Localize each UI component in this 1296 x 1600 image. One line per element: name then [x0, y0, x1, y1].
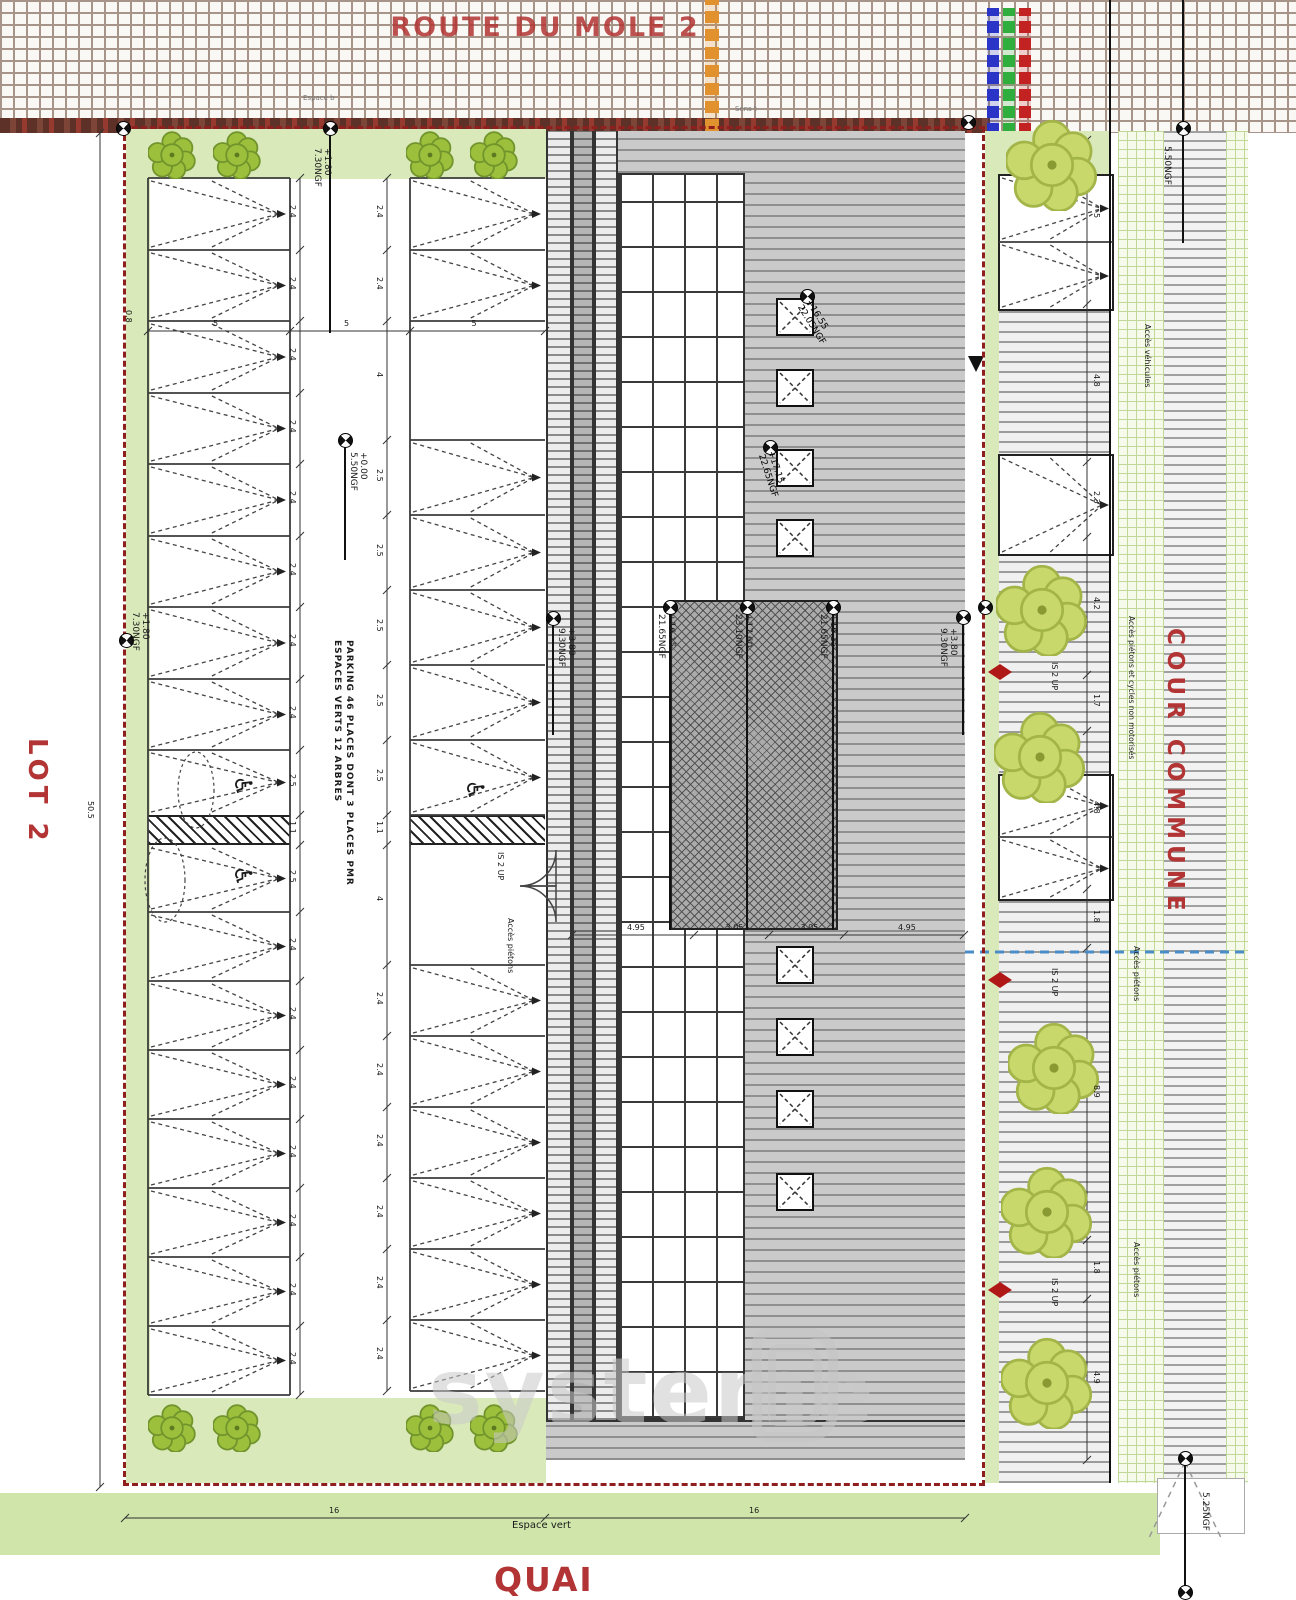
- wheelchair-icon: ♿: [461, 779, 489, 801]
- dim-label: 3.05: [801, 923, 819, 932]
- dim-label: 2.5: [375, 619, 384, 632]
- dim-label: 2.4: [375, 1063, 384, 1076]
- wheelchair-icon: ♿: [229, 865, 257, 887]
- wheelchair-icon: ♿: [229, 775, 257, 797]
- dim-label: 2.4: [288, 563, 297, 576]
- tram-lane-marker: [705, 0, 719, 131]
- street-note-right: Sens t: [735, 105, 757, 113]
- acces-pietons-lot: Accès piétons: [506, 918, 515, 973]
- dim-label: 4.8: [1092, 374, 1101, 387]
- elev-building-right: +3.809.30NGF: [938, 628, 958, 667]
- dim-label: 2.5: [375, 469, 384, 482]
- dim-label: 2.4: [288, 1076, 297, 1089]
- acces-pietons-court-2: Accès piétons: [1132, 1242, 1141, 1297]
- level-marker-icon: [546, 611, 561, 626]
- dim-label: 2.4: [375, 205, 384, 218]
- level-marker-icon: [116, 121, 131, 136]
- dim-label: 1.1: [288, 821, 297, 834]
- is2up-lot: IS 2 UP: [496, 852, 505, 880]
- dim-label: 2.4: [288, 1007, 297, 1020]
- dim-label: 2.4: [288, 1283, 297, 1296]
- dim-label: 50.5: [86, 801, 95, 819]
- espace-vert-label: Espace vert: [512, 1520, 571, 1531]
- ped-path-west: [1118, 131, 1164, 1483]
- dim-label: 2.5: [375, 694, 384, 707]
- dim-label: 2.4: [288, 706, 297, 719]
- elev-quai-corner: 5.25NGF: [1200, 1492, 1210, 1531]
- espace-vert-band: [0, 1493, 1160, 1555]
- legend-bar-green: [1003, 8, 1015, 135]
- elev-lot-center: +0.005.50NGF: [348, 452, 368, 491]
- elev-lot-left: +1.807.30NGF: [130, 612, 150, 651]
- dim-label: 5: [344, 319, 349, 328]
- dim-label: 2.5: [288, 774, 297, 787]
- level-marker-icon: [338, 433, 353, 448]
- dim-label: 2.4: [288, 491, 297, 504]
- dim-label: 1.7: [1092, 694, 1101, 707]
- dim-label: 4.95: [898, 923, 916, 932]
- level-marker-icon: [1178, 1451, 1193, 1466]
- dim-label: 2.5: [288, 870, 297, 883]
- elev-court-top: 5.50NGF: [1162, 146, 1172, 185]
- dim-label: 4.8: [1092, 801, 1101, 814]
- dim-label: 2.3: [1092, 491, 1101, 504]
- level-marker-icon: [1176, 121, 1191, 136]
- level-marker-icon: [1178, 1585, 1193, 1600]
- dim-label: 16: [749, 1506, 759, 1515]
- street-note-left: Espace b: [303, 94, 335, 102]
- dim-label: 5: [213, 319, 218, 328]
- dim-label: 2.4: [288, 420, 297, 433]
- dim-label: 5: [1092, 213, 1101, 218]
- level-marker-icon: [663, 600, 678, 615]
- dim-label: 5: [472, 319, 477, 328]
- dim-label: 4.9: [1092, 1371, 1101, 1384]
- site-plan: 2.42.42.42.42.42.42.42.42.51.12.52.42.42…: [0, 0, 1296, 1600]
- lot-title: LOT 2: [22, 738, 52, 846]
- watermark-logo: [752, 1328, 838, 1442]
- court-green-strip: [985, 131, 999, 1483]
- dim-label: 1.8: [1092, 910, 1101, 923]
- level-marker-icon: [323, 121, 338, 136]
- dim-label: 2.4: [288, 634, 297, 647]
- legend-bar-red: [1019, 8, 1031, 135]
- dim-label: 4: [375, 372, 384, 377]
- legend-bar-blue: [987, 8, 999, 135]
- elev-tower-right: +16.1521.65NGF: [818, 614, 838, 659]
- is2up-court-1: IS 2 UP: [1050, 662, 1059, 690]
- elev-tower-left: +16.1521.65NGF: [656, 614, 676, 659]
- elev-lot-top: +1.807.30NGF: [312, 148, 332, 187]
- dim-label: 2.4: [288, 1214, 297, 1227]
- lot-boundary: [123, 126, 985, 1486]
- acces-vehicules: Accès véhicules: [1143, 324, 1152, 388]
- dim-label: 8.9: [1092, 1085, 1101, 1098]
- dim-label: 1.1: [375, 821, 384, 834]
- dim-label: 3.05: [726, 923, 744, 932]
- dim-label: 2.5: [375, 544, 384, 557]
- street-name: ROUTE DU MOLE 2: [385, 12, 705, 43]
- level-marker-icon: [961, 115, 976, 130]
- ped-path-east: [1226, 131, 1248, 1483]
- elev-tower-mid: +17.6023.10NGF: [733, 614, 753, 659]
- level-marker-icon: [956, 610, 971, 625]
- dim-label: 2.4: [288, 205, 297, 218]
- dim-label: 4.2: [1092, 597, 1101, 610]
- dim-label: 16: [329, 1506, 339, 1515]
- dim-label: 1.8: [1092, 1261, 1101, 1274]
- is2up-court-3: IS 2 UP: [1050, 1278, 1059, 1306]
- dim-label: 2.4: [375, 1276, 384, 1289]
- dim-label: 2.4: [375, 277, 384, 290]
- is2up-court-2: IS 2 UP: [1050, 968, 1059, 996]
- level-marker-icon: [826, 600, 841, 615]
- dim-label: 2.4: [288, 277, 297, 290]
- dim-label: 2.4: [288, 1145, 297, 1158]
- dim-label: 2.5: [375, 769, 384, 782]
- dim-label: 2.4: [375, 1134, 384, 1147]
- dim-label: 2.4: [375, 992, 384, 1005]
- court-green-top: [999, 131, 1111, 201]
- level-marker-icon: [740, 600, 755, 615]
- dim-label: 0.8: [124, 310, 133, 323]
- acces-pietons-cycles: Accès piétons et cycles non motorisés: [1126, 616, 1137, 786]
- dim-label: 2.4: [375, 1347, 384, 1360]
- dim-label: 4.95: [627, 923, 645, 932]
- elev-building-left: +3.809.30NGF: [556, 628, 576, 667]
- parking-note-line2: ESPACES VERTS 12 ARBRES: [331, 640, 343, 886]
- dim-label: 2.4: [375, 1205, 384, 1218]
- acces-pietons-court-1: Accès piétons: [1132, 946, 1141, 1001]
- level-marker-icon: [978, 600, 993, 615]
- court-title: COUR COMMUNE: [1162, 628, 1188, 917]
- parking-note-line1: PARKING 46 PLACES DONT 3 PLACES PMR: [343, 640, 355, 886]
- dim-label: 2.4: [288, 1352, 297, 1365]
- dim-label: 4: [375, 896, 384, 901]
- parking-note: PARKING 46 PLACES DONT 3 PLACES PMR ESPA…: [331, 640, 355, 886]
- dim-label: 2.4: [288, 938, 297, 951]
- quai-title: QUAI: [494, 1560, 594, 1599]
- dim-label: 2.4: [288, 348, 297, 361]
